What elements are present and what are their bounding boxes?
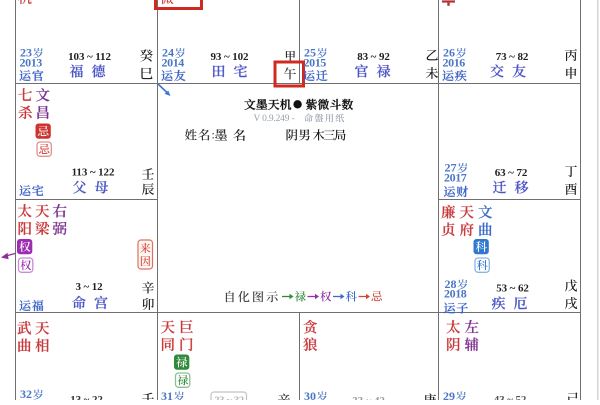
svg-text:103 ~ 112: 103 ~ 112	[68, 51, 111, 63]
svg-text::: :	[212, 128, 215, 142]
svg-text:32: 32	[20, 387, 32, 400]
svg-text:83 ~ 92: 83 ~ 92	[357, 51, 390, 63]
svg-text:53 ~ 62: 53 ~ 62	[496, 283, 529, 295]
svg-text:2013: 2013	[20, 56, 43, 70]
svg-text:93 ~ 102: 93 ~ 102	[211, 51, 250, 63]
svg-text:63 ~ 72: 63 ~ 72	[495, 167, 528, 179]
svg-text:2016: 2016	[443, 56, 466, 70]
svg-text:33 ~ 42: 33 ~ 42	[352, 395, 385, 400]
svg-text:2017: 2017	[444, 171, 467, 185]
svg-text:31: 31	[161, 389, 173, 400]
svg-text:29: 29	[443, 389, 455, 400]
svg-text:43 ~ 52: 43 ~ 52	[494, 394, 527, 400]
svg-text:30: 30	[304, 389, 316, 400]
svg-text:2018: 2018	[444, 287, 467, 301]
svg-text:2015: 2015	[304, 56, 327, 70]
svg-text:23 ~ 32: 23 ~ 32	[214, 396, 244, 401]
svg-text:V 0.9.249 -: V 0.9.249 -	[254, 114, 295, 124]
svg-text:13 ~ 22: 13 ~ 22	[70, 394, 103, 400]
svg-text:113 ~ 122: 113 ~ 122	[72, 167, 115, 179]
svg-text:2014: 2014	[162, 56, 185, 70]
svg-text:73 ~ 82: 73 ~ 82	[496, 51, 529, 63]
svg-text:3 ~ 12: 3 ~ 12	[75, 281, 103, 293]
